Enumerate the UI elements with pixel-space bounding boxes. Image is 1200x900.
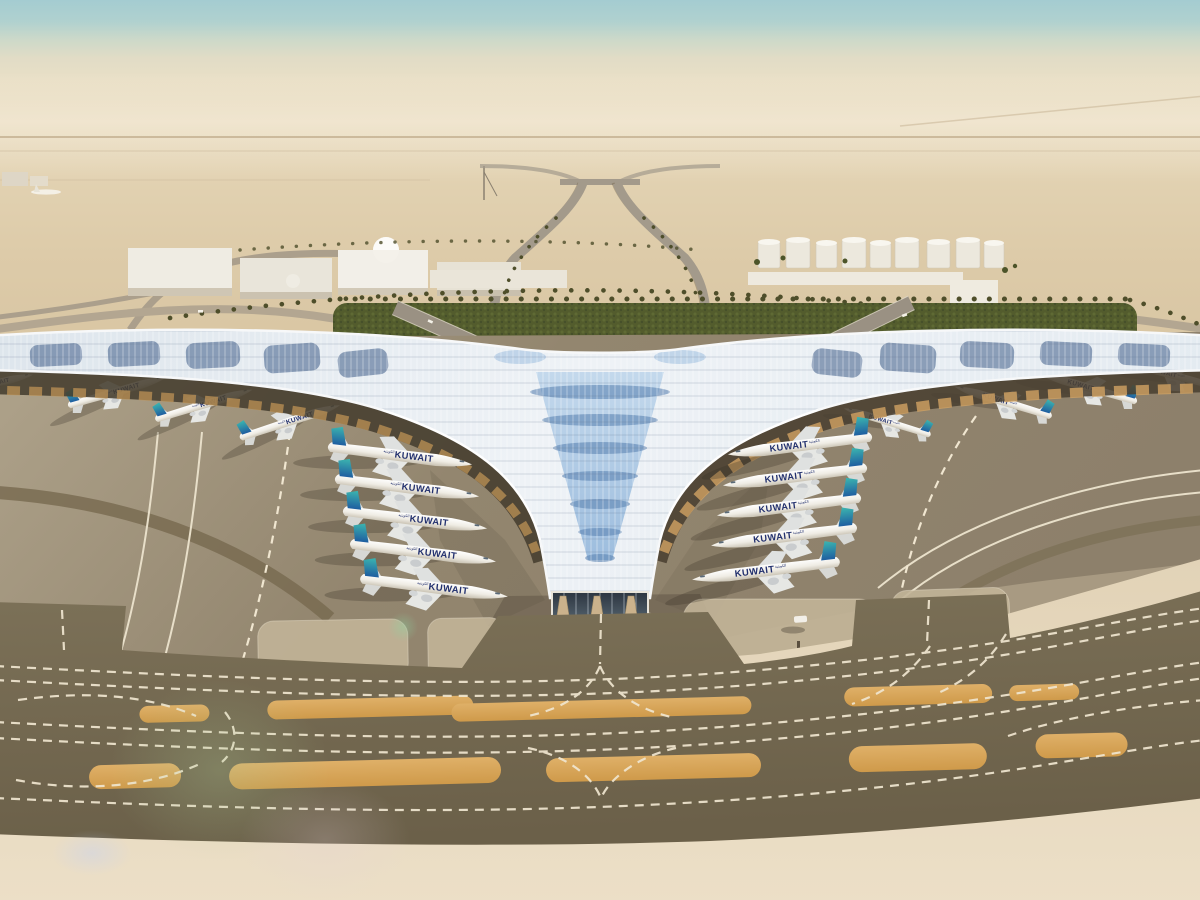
aerial-rendering: الكويتية KUWAIT xyxy=(0,0,1200,900)
foreground-taxiways xyxy=(0,0,1200,900)
